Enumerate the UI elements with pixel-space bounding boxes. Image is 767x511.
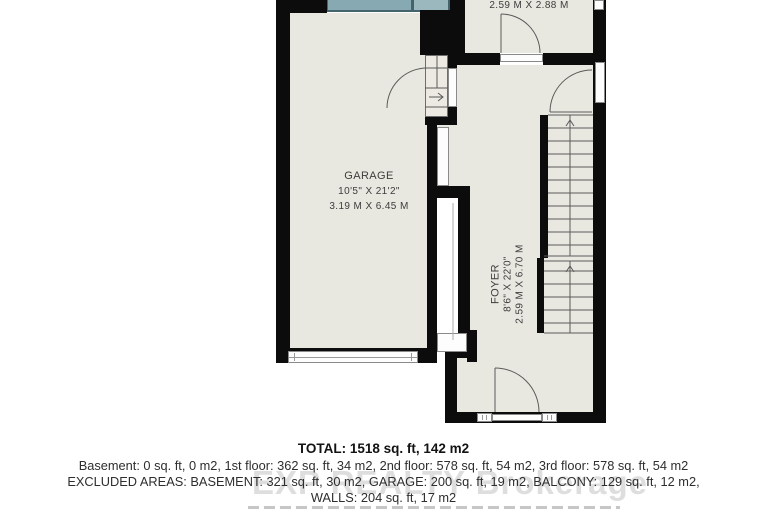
room-dim-metric: 3.19 M X 6.45 M	[290, 199, 448, 214]
stair-wall	[537, 258, 544, 333]
wall	[427, 125, 437, 357]
total-area-line: TOTAL: 1518 sq. ft, 142 m2	[0, 441, 767, 457]
entry-door-frame	[595, 62, 605, 103]
foyer-label: FOYER 8'6" X 22'0" 2.59 M X 6.70 M	[489, 229, 527, 339]
garage-door	[288, 351, 418, 363]
sidelite	[477, 413, 492, 422]
deck-strip	[326, 0, 413, 12]
door-threshold	[500, 54, 543, 62]
garage-foyer-door-sill	[448, 68, 457, 107]
wall	[458, 198, 470, 348]
room-name: GARAGE	[290, 169, 448, 184]
wall	[420, 10, 457, 55]
room-dim-metric: 2.59 M X 6.70 M	[514, 229, 527, 339]
room-dim-imperial: 8'6" X 22'0"	[502, 229, 515, 339]
wall	[467, 330, 477, 362]
room-dim-metric: 2.59 M X 2.88 M	[465, 0, 593, 13]
room-name: FOYER	[489, 229, 502, 339]
fine-print-line	[248, 506, 620, 509]
wall	[276, 0, 290, 363]
room-dim-imperial: 10'5" X 21'2"	[290, 184, 448, 199]
stair-wall	[540, 115, 548, 258]
wall	[448, 55, 457, 68]
party-wall-channel	[437, 198, 458, 352]
window-frame	[437, 333, 467, 352]
floor-areas-line: Basement: 0 sq. ft, 0 m2, 1st floor: 362…	[0, 458, 767, 474]
wall	[543, 53, 593, 65]
front-door-threshold	[492, 414, 542, 421]
sidelite	[542, 413, 557, 422]
window-frame	[594, 0, 604, 10]
walls-area-line: WALLS: 204 sq. ft, 17 m2	[0, 490, 767, 506]
top-room-label: 2.59 M X 2.88 M	[465, 0, 593, 13]
garage-label: GARAGE 10'5" X 21'2" 3.19 M X 6.45 M	[290, 169, 448, 214]
wall	[465, 53, 500, 65]
wall	[276, 0, 327, 13]
garage-landing-steps	[425, 55, 448, 117]
excluded-areas-line: EXCLUDED AREAS: BASEMENT: 321 sq. ft, 30…	[0, 474, 767, 490]
